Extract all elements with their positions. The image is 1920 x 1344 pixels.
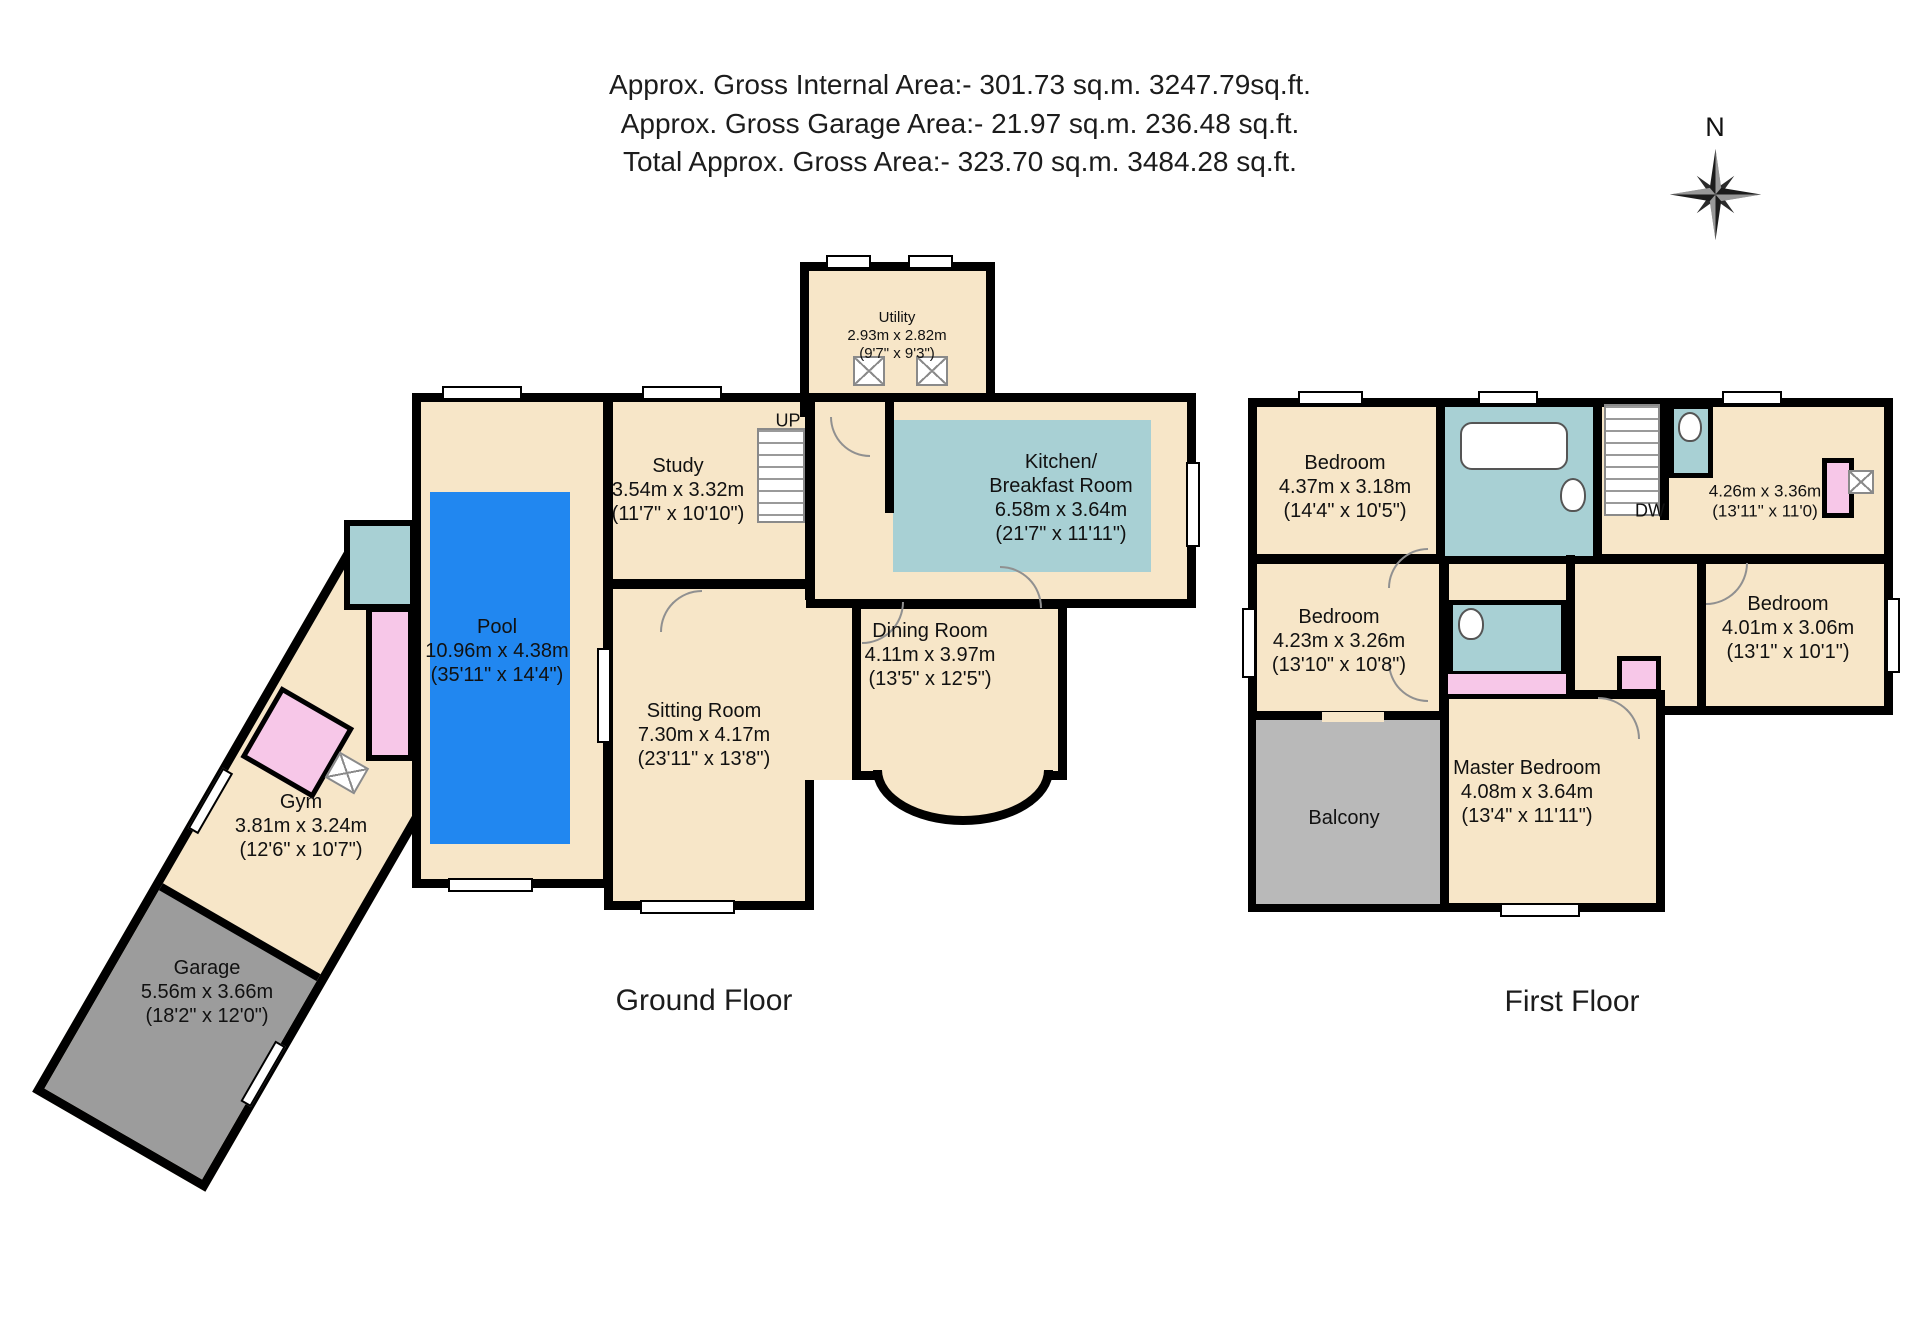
compass: N xyxy=(1655,112,1775,272)
ground-floor-title: Ground Floor xyxy=(616,984,793,1018)
dining-room-label: Dining Room 4.11m x 3.97m (13'5" x 12'5"… xyxy=(865,619,996,691)
gross-internal-area-line: Approx. Gross Internal Area:- 301.73 sq.… xyxy=(0,66,1920,105)
bedroom-mid-window xyxy=(1242,608,1256,678)
bedroom-front-label: Bedroom 4.37m x 3.18m (14'4" x 10'5") xyxy=(1279,451,1411,523)
toilet-ensuite xyxy=(1458,608,1484,640)
area-summary: Approx. Gross Internal Area:- 301.73 sq.… xyxy=(0,66,1920,182)
total-gross-area-line: Total Approx. Gross Area:- 323.70 sq.m. … xyxy=(0,143,1920,182)
gym-room-label: Gym 3.81m x 3.24m (12'6" x 10'7") xyxy=(235,790,367,862)
dw-label: DW xyxy=(1635,501,1665,522)
toilet-bathroom xyxy=(1560,478,1586,512)
ground-floor-stairs xyxy=(757,428,805,523)
sitting-room-window-bottom xyxy=(640,900,735,914)
compass-rose-icon xyxy=(1668,147,1763,242)
airing-cupboard xyxy=(1848,470,1874,494)
utility-window-2 xyxy=(908,255,953,269)
balcony-label: Balcony xyxy=(1308,806,1379,830)
kitchen-window-right xyxy=(1186,462,1200,547)
sitting-room-label: Sitting Room 7.30m x 4.17m (23'11" x 13'… xyxy=(638,699,771,771)
compass-north-label: N xyxy=(1655,112,1775,143)
first-floor-stairs xyxy=(1604,404,1660,516)
bedroom-rear-wall-left xyxy=(1697,563,1706,708)
bathroom-wall-left xyxy=(1436,398,1445,563)
garage-room xyxy=(44,883,320,1179)
pool-shower-room xyxy=(344,520,416,610)
first-floor-title: First Floor xyxy=(1505,985,1640,1019)
bedroom-front-window xyxy=(1298,391,1363,405)
room-top-right-label: 4.26m x 3.36m (13'11" x 11'0) xyxy=(1709,482,1821,523)
garage-room-label: Garage 5.56m x 3.66m (18'2" x 12'0") xyxy=(141,956,273,1028)
gym-window xyxy=(188,768,233,835)
gross-garage-area-line: Approx. Gross Garage Area:- 21.97 sq.m. … xyxy=(0,105,1920,144)
bathtub xyxy=(1460,422,1568,470)
room-top-right-window xyxy=(1722,391,1782,405)
bathroom-wall-right xyxy=(1593,398,1602,558)
utility-window-1 xyxy=(826,255,871,269)
bathroom-window xyxy=(1478,391,1538,405)
kitchen-room-label: Kitchen/ Breakfast Room 6.58m x 3.64m (2… xyxy=(989,450,1132,546)
balcony-door-opening xyxy=(1322,712,1384,722)
pool-room-window-bottom xyxy=(448,878,533,892)
study-room-label: Study 3.54m x 3.32m (11'7" x 10'10") xyxy=(612,454,745,526)
pool-room-window-top xyxy=(442,386,522,400)
dining-bay-window xyxy=(873,770,1053,825)
kitchen-wall-stub xyxy=(885,393,894,513)
toilet-wc xyxy=(1678,412,1702,442)
wardrobe-master xyxy=(1617,656,1661,694)
bedroom-rear-window xyxy=(1886,598,1900,673)
study-window-top xyxy=(642,386,722,400)
pool-room-label: Pool 10.96m x 4.38m (35'11" x 14'4") xyxy=(425,615,568,687)
master-wardrobe-strip xyxy=(1448,674,1566,694)
stairs-up-label: UP xyxy=(775,411,800,432)
master-bedroom-label: Master Bedroom 4.08m x 3.64m (13'4" x 11… xyxy=(1453,756,1601,828)
floorplan-canvas: Approx. Gross Internal Area:- 301.73 sq.… xyxy=(0,0,1920,1344)
sitting-room-window-left xyxy=(597,648,611,743)
utility-room-label: Utility 2.93m x 2.82m (9'7" x 9'3") xyxy=(847,309,946,363)
bedroom-mid-label: Bedroom 4.23m x 3.26m (13'10" x 10'8") xyxy=(1272,605,1406,677)
bedroom-rear-label: Bedroom 4.01m x 3.06m (13'1" x 10'1") xyxy=(1722,592,1854,664)
pool-changing-room xyxy=(366,606,414,761)
master-bedroom-window xyxy=(1500,903,1580,917)
ensuite-wall-right xyxy=(1566,555,1575,699)
